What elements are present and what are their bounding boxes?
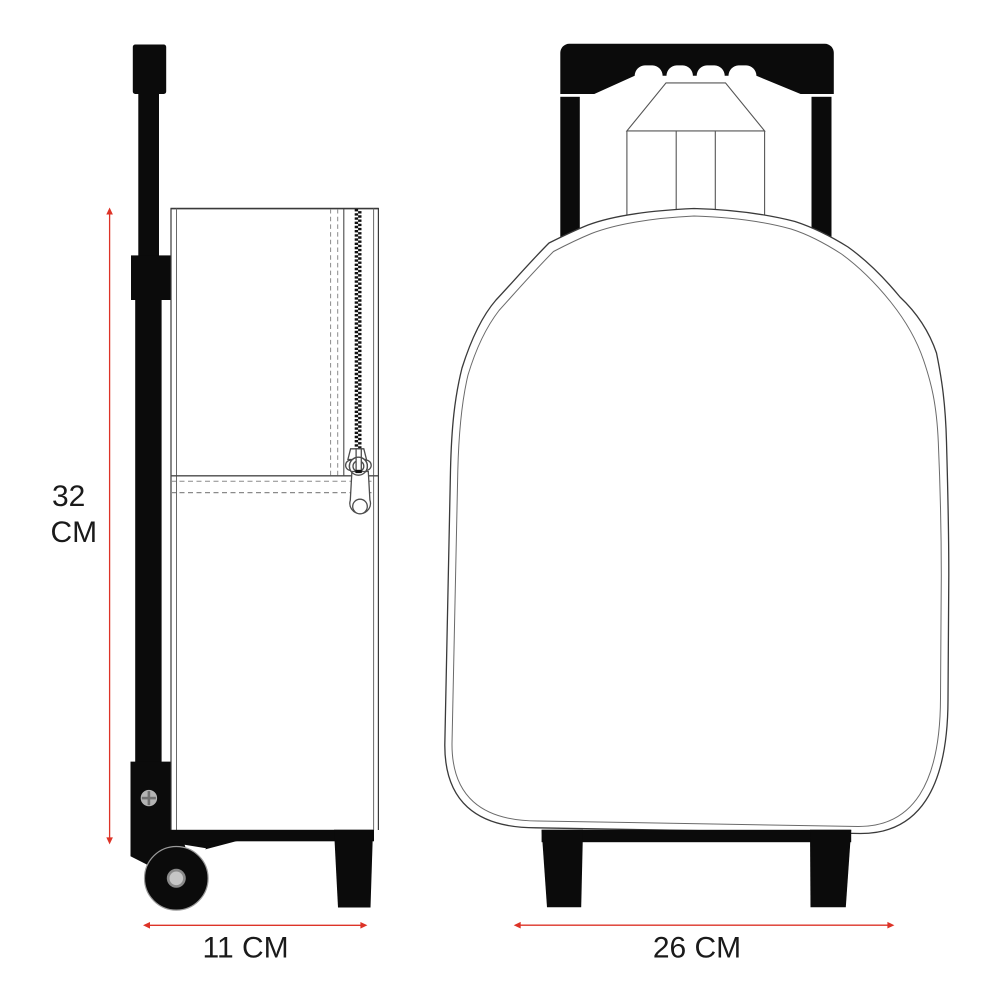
svg-text:CM: CM — [51, 516, 98, 549]
svg-text:11 CM: 11 CM — [203, 932, 289, 965]
svg-text:32: 32 — [52, 480, 85, 513]
svg-text:26 CM: 26 CM — [653, 932, 741, 965]
